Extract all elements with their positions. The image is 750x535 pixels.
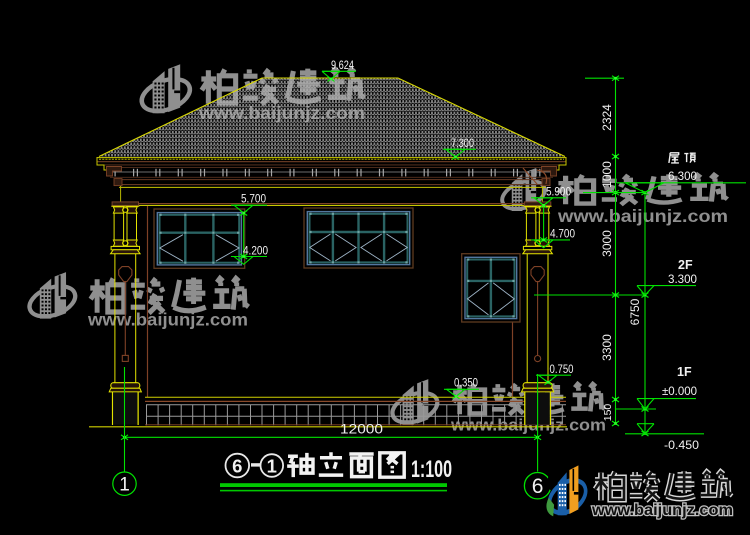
- svg-text:5.700: 5.700: [241, 194, 266, 206]
- svg-text:3.300: 3.300: [668, 272, 697, 286]
- svg-text:6750: 6750: [628, 298, 642, 325]
- svg-text:150: 150: [602, 404, 614, 422]
- svg-text:1: 1: [119, 475, 130, 496]
- svg-text:7.300: 7.300: [451, 138, 474, 150]
- svg-text:0.350: 0.350: [454, 378, 478, 390]
- svg-text:-0.450: -0.450: [664, 438, 699, 452]
- svg-text:1: 1: [267, 455, 277, 476]
- svg-text:±0.000: ±0.000: [662, 384, 697, 398]
- svg-text:1:100: 1:100: [411, 456, 452, 483]
- svg-text:3000: 3000: [600, 230, 614, 257]
- svg-text:4.700: 4.700: [550, 228, 575, 240]
- svg-text:2324: 2324: [600, 104, 614, 131]
- svg-text:3300: 3300: [600, 334, 614, 361]
- svg-text:6.300: 6.300: [668, 169, 697, 183]
- svg-text:5.900: 5.900: [546, 187, 571, 199]
- svg-text:2F: 2F: [678, 258, 693, 272]
- svg-text:www.baijunjz.com: www.baijunjz.com: [557, 206, 728, 226]
- svg-text:12000: 12000: [340, 422, 383, 437]
- svg-text:1000: 1000: [600, 161, 614, 188]
- svg-text:6: 6: [532, 475, 544, 498]
- svg-text:6: 6: [232, 455, 242, 476]
- svg-text:www.baijunjz.com: www.baijunjz.com: [591, 502, 733, 519]
- svg-text:www.baijunjz.com: www.baijunjz.com: [87, 310, 248, 330]
- svg-text:9.624: 9.624: [331, 60, 354, 72]
- svg-text:1F: 1F: [677, 365, 692, 379]
- svg-text:0.750: 0.750: [550, 364, 574, 376]
- svg-text:4.200: 4.200: [243, 246, 268, 258]
